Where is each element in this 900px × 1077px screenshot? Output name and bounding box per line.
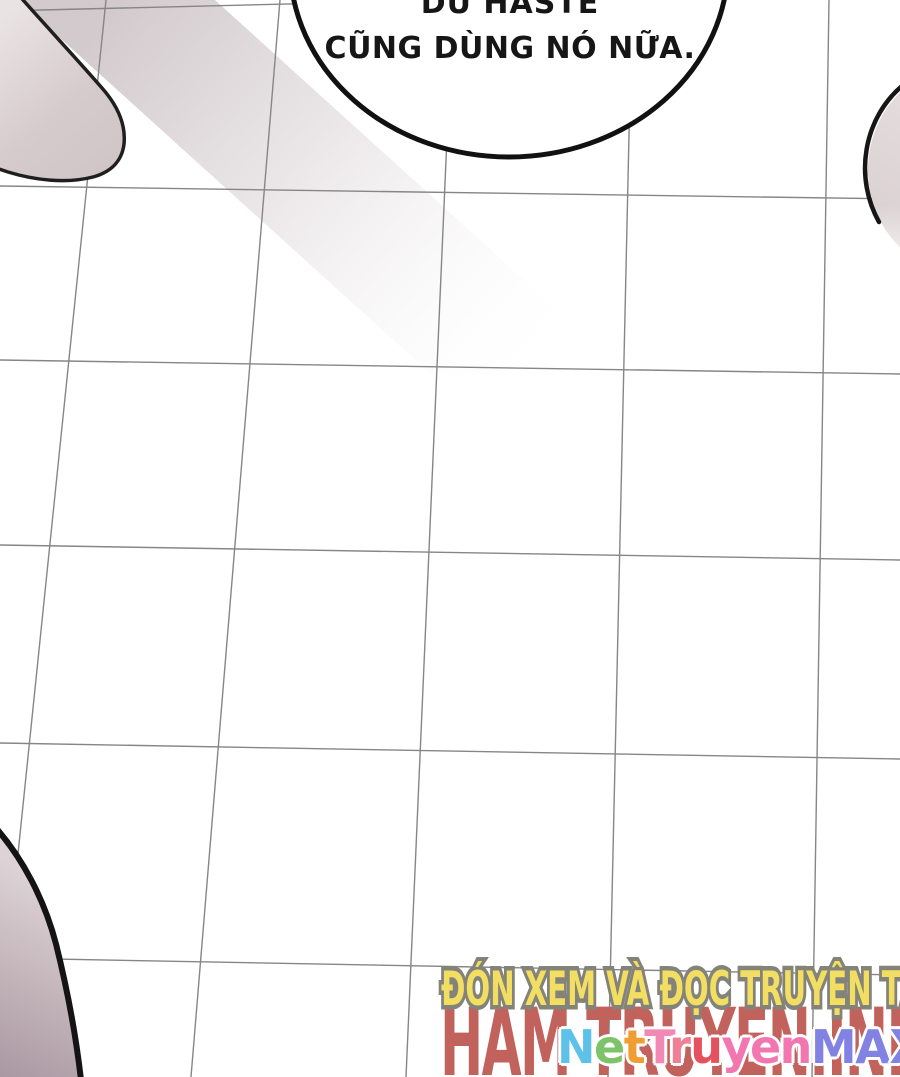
speech-bubble-line2: CŨNG DÙNG NÓ NỮA. (292, 34, 728, 64)
watermark-letter: M (811, 1020, 855, 1074)
watermark: NetTruyenMAX (557, 1024, 900, 1070)
watermark-letter: u (690, 1020, 721, 1074)
watermark-letter: e (750, 1020, 780, 1074)
watermark-letter: e (594, 1020, 624, 1074)
watermark-letter: X (889, 1020, 900, 1074)
watermark-letter: A (855, 1020, 889, 1074)
panel-background (0, 0, 900, 1077)
watermark-letter: N (557, 1020, 594, 1074)
watermark-letter: r (669, 1020, 690, 1074)
watermark-letter: n (780, 1020, 811, 1074)
watermark-letter: y (721, 1020, 750, 1074)
panel-artwork (0, 0, 900, 1077)
promo-tagline-fill: ĐÓN XEM VÀ ĐỌC TRUYỆN TẠI (441, 966, 900, 1013)
speech-bubble-line1: DU HASTE (292, 0, 728, 19)
promo-tagline: ĐÓN XEM VÀ ĐỌC TRUYỆN TẠI ĐÓN XEM VÀ ĐỌC… (441, 966, 900, 1013)
watermark-letter: T (644, 1020, 669, 1074)
right-figure-fade (845, 200, 900, 310)
comic-panel: DU HASTE CŨNG DÙNG NÓ NỮA. HAM TRUYEN.IN… (0, 0, 900, 1077)
watermark-letter: t (624, 1020, 645, 1074)
